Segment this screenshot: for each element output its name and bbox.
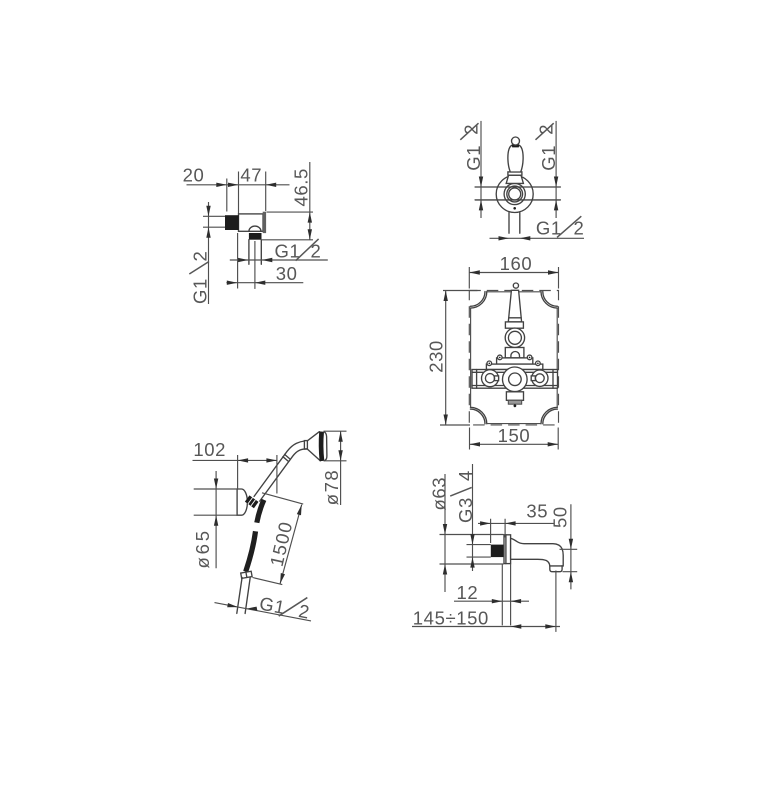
svg-text:20: 20 [183, 165, 205, 186]
svg-text:G3: G3 [455, 497, 476, 523]
svg-text:30: 30 [276, 263, 298, 284]
svg-text:2: 2 [461, 124, 482, 135]
svg-text:35: 35 [526, 500, 548, 521]
svg-text:2: 2 [311, 241, 322, 262]
svg-text:4: 4 [455, 470, 476, 481]
svg-text:50: 50 [549, 506, 570, 528]
svg-text:ø65: ø65 [192, 528, 213, 568]
svg-text:ø63: ø63 [428, 477, 449, 511]
svg-text:230: 230 [426, 340, 447, 373]
svg-text:G1: G1 [536, 218, 562, 239]
svg-text:2: 2 [189, 251, 210, 262]
svg-text:160: 160 [500, 253, 533, 274]
svg-text:2: 2 [536, 124, 557, 135]
svg-text:2: 2 [574, 218, 585, 239]
svg-text:150: 150 [498, 425, 531, 446]
svg-text:102: 102 [193, 439, 226, 460]
svg-text:G1: G1 [275, 241, 301, 262]
svg-text:46.5: 46.5 [290, 168, 311, 206]
svg-text:G1: G1 [463, 145, 484, 171]
svg-text:145÷150: 145÷150 [413, 607, 489, 628]
svg-text:ø78: ø78 [321, 469, 342, 505]
svg-text:G1: G1 [538, 145, 559, 171]
svg-text:G1: G1 [189, 278, 210, 304]
svg-text:12: 12 [457, 582, 479, 603]
svg-text:47: 47 [240, 165, 262, 186]
